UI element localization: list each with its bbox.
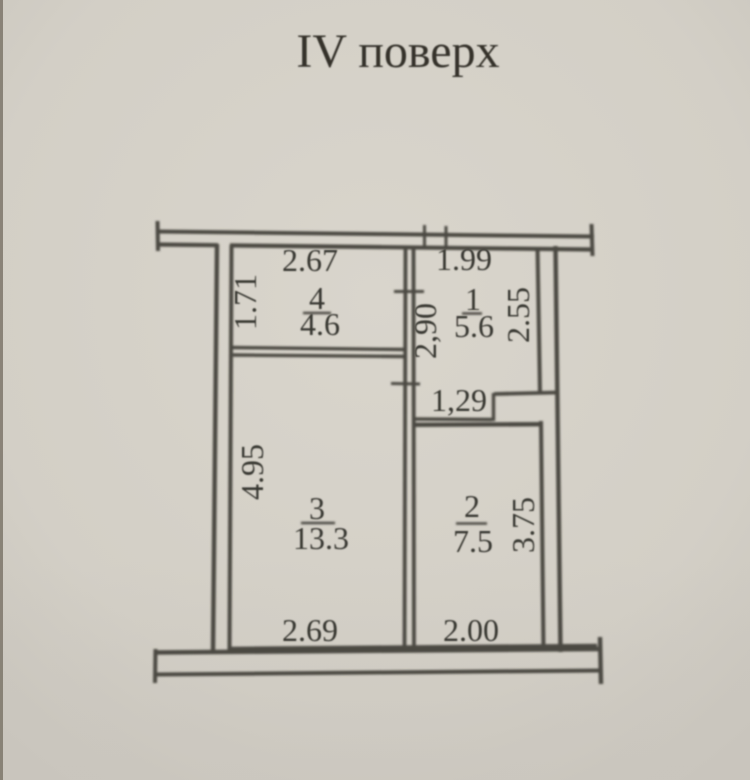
svg-text:2.69: 2.69 [282, 612, 338, 648]
svg-text:2.55: 2.55 [500, 287, 536, 343]
svg-text:4.6: 4.6 [300, 306, 340, 342]
svg-text:2,90: 2,90 [407, 303, 443, 359]
svg-text:2: 2 [464, 488, 480, 524]
svg-text:2.00: 2.00 [443, 612, 499, 648]
svg-text:4.95: 4.95 [234, 444, 270, 500]
svg-text:1.71: 1.71 [227, 274, 263, 330]
svg-text:2.67: 2.67 [282, 242, 338, 278]
svg-text:1,29: 1,29 [431, 382, 487, 418]
svg-text:13.3: 13.3 [293, 520, 349, 556]
svg-text:1.99: 1.99 [436, 241, 492, 277]
svg-text:IV поверх: IV поверх [296, 25, 499, 78]
svg-text:5.6: 5.6 [454, 308, 494, 344]
svg-text:3.75: 3.75 [505, 497, 541, 553]
svg-text:7.5: 7.5 [453, 523, 493, 559]
